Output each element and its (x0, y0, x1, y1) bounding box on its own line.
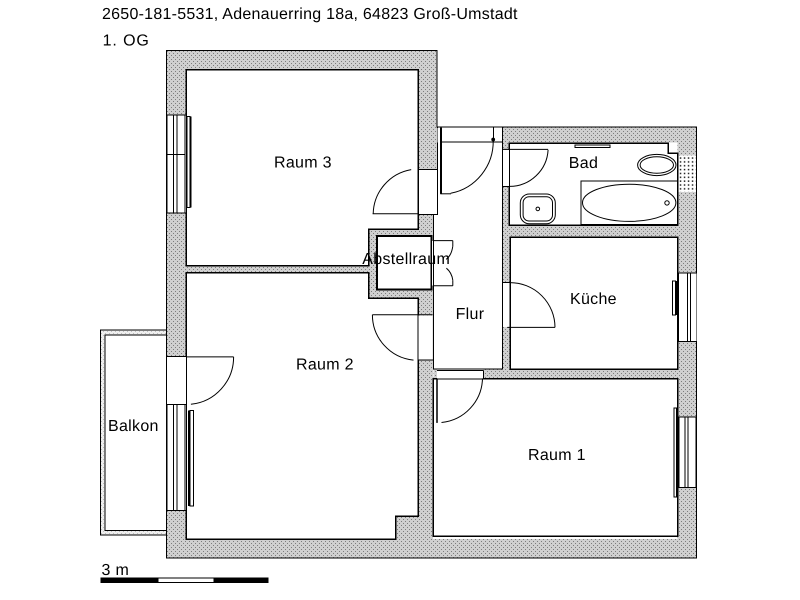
svg-text:Bad: Bad (569, 155, 598, 172)
svg-text:Balkon: Balkon (108, 418, 159, 435)
svg-text:2650-181-5531, Adenauerring 18: 2650-181-5531, Adenauerring 18a, 64823 G… (102, 6, 518, 23)
svg-text:3 m: 3 m (102, 562, 130, 579)
svg-text:Raum 1: Raum 1 (528, 447, 586, 464)
svg-text:Abstellraum: Abstellraum (362, 251, 450, 268)
svg-text:Küche: Küche (570, 291, 617, 308)
svg-text:Raum 3: Raum 3 (274, 154, 332, 171)
svg-text:1. OG: 1. OG (103, 33, 150, 50)
svg-text:Flur: Flur (456, 306, 485, 323)
svg-text:Raum 2: Raum 2 (296, 357, 354, 374)
